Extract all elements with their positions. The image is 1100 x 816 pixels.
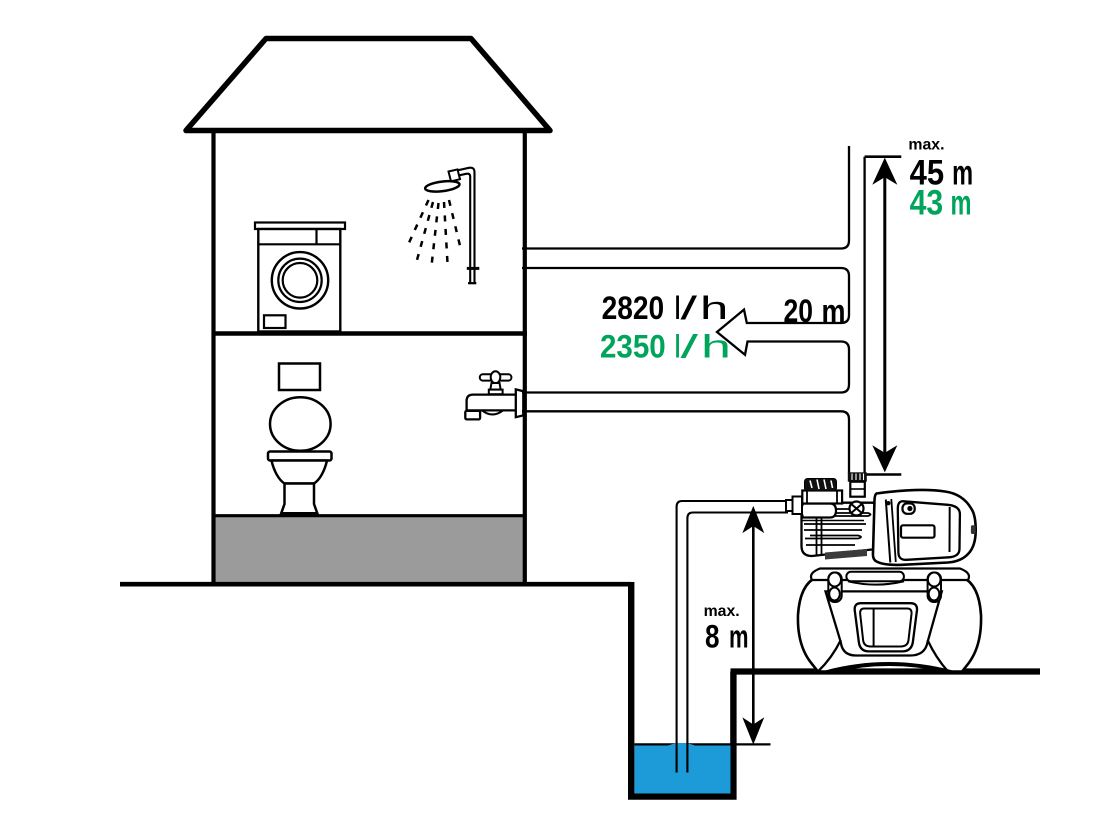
svg-text:43m: 43m [910,183,972,222]
svg-text:2820: 2820 [602,290,665,326]
svg-text:max.: max. [908,137,944,154]
svg-text:l/h: l/h [674,290,728,326]
svg-text:2350: 2350 [600,329,666,365]
svg-text:max.: max. [704,603,740,620]
svg-text:l/h: l/h [674,329,731,365]
